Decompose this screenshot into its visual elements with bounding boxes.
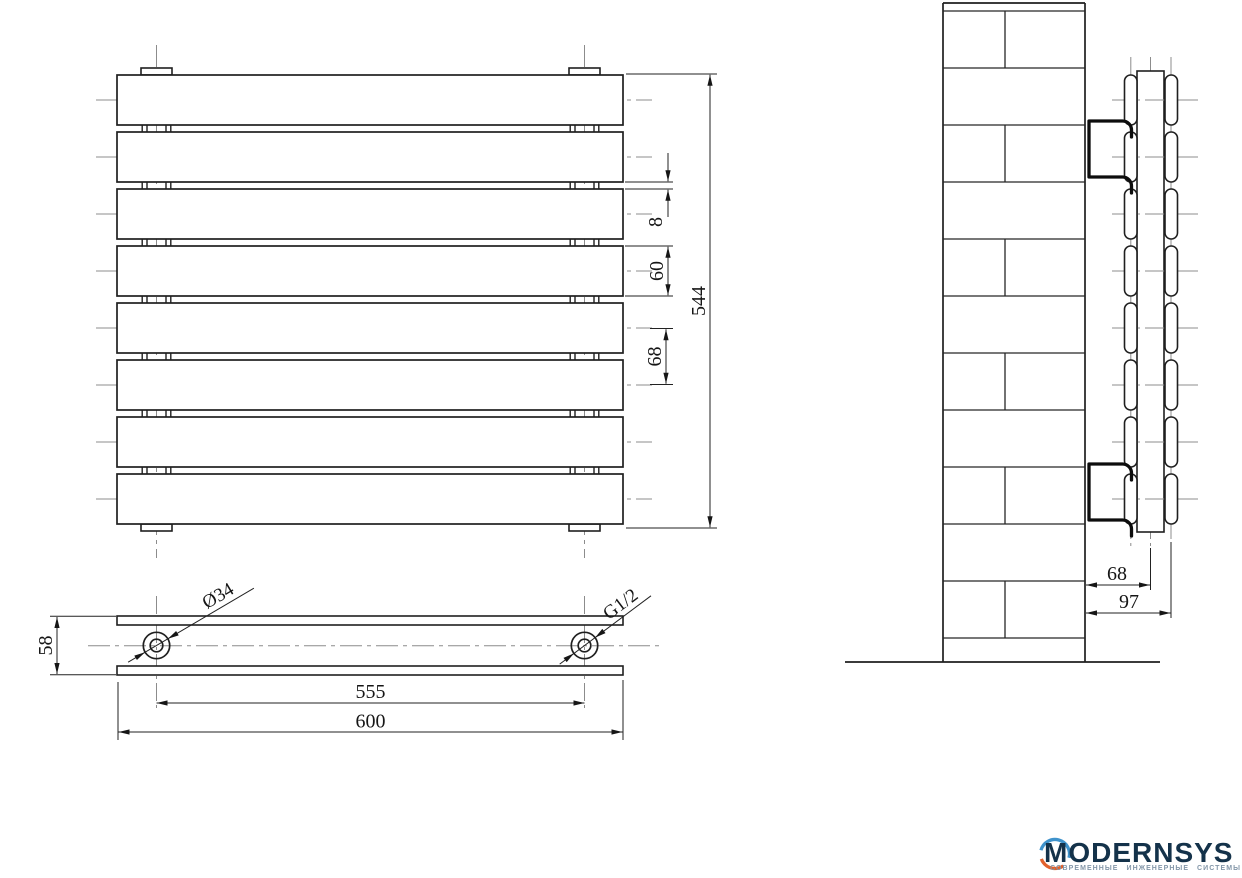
dim-wall-to-collector-label: 68 (1107, 563, 1127, 585)
panel-rows (96, 75, 652, 524)
dim-pitch-label: 68 (644, 347, 666, 367)
drawing-canvas: 8 60 68 544 (0, 0, 1242, 878)
vertical-collector (1137, 71, 1164, 532)
bottom-view: 58 Ø34 G1/2 555 600 (35, 579, 660, 740)
dim-total-length-label: 600 (356, 711, 386, 733)
dim-wall-to-front-label: 97 (1119, 591, 1139, 613)
front-view: 8 60 68 544 (96, 45, 717, 558)
dim-port-spacing-label: 555 (356, 681, 386, 703)
panel-plan-front (117, 666, 623, 675)
dim-total-height-label: 544 (688, 286, 710, 316)
radiator-technical-drawing: 8 60 68 544 (0, 0, 1242, 878)
dim-depth-label: 58 (35, 636, 57, 656)
side-view: 68 97 (845, 3, 1203, 662)
brick-wall (943, 3, 1085, 662)
brand-tagline: СОВРЕМЕННЫЕ ИНЖЕНЕРНЫЕ СИСТЕМЫ (1050, 865, 1241, 872)
dim-gap-8 (625, 153, 673, 217)
dim-diameter-label: Ø34 (199, 579, 238, 614)
brand-logo: MODERNSYS СОВРЕМЕННЫЕ ИНЖЕНЕРНЫЕ СИСТЕМЫ (1030, 833, 1242, 877)
dim-gap-label: 8 (645, 217, 667, 227)
dim-panel-height-label: 60 (646, 261, 668, 281)
